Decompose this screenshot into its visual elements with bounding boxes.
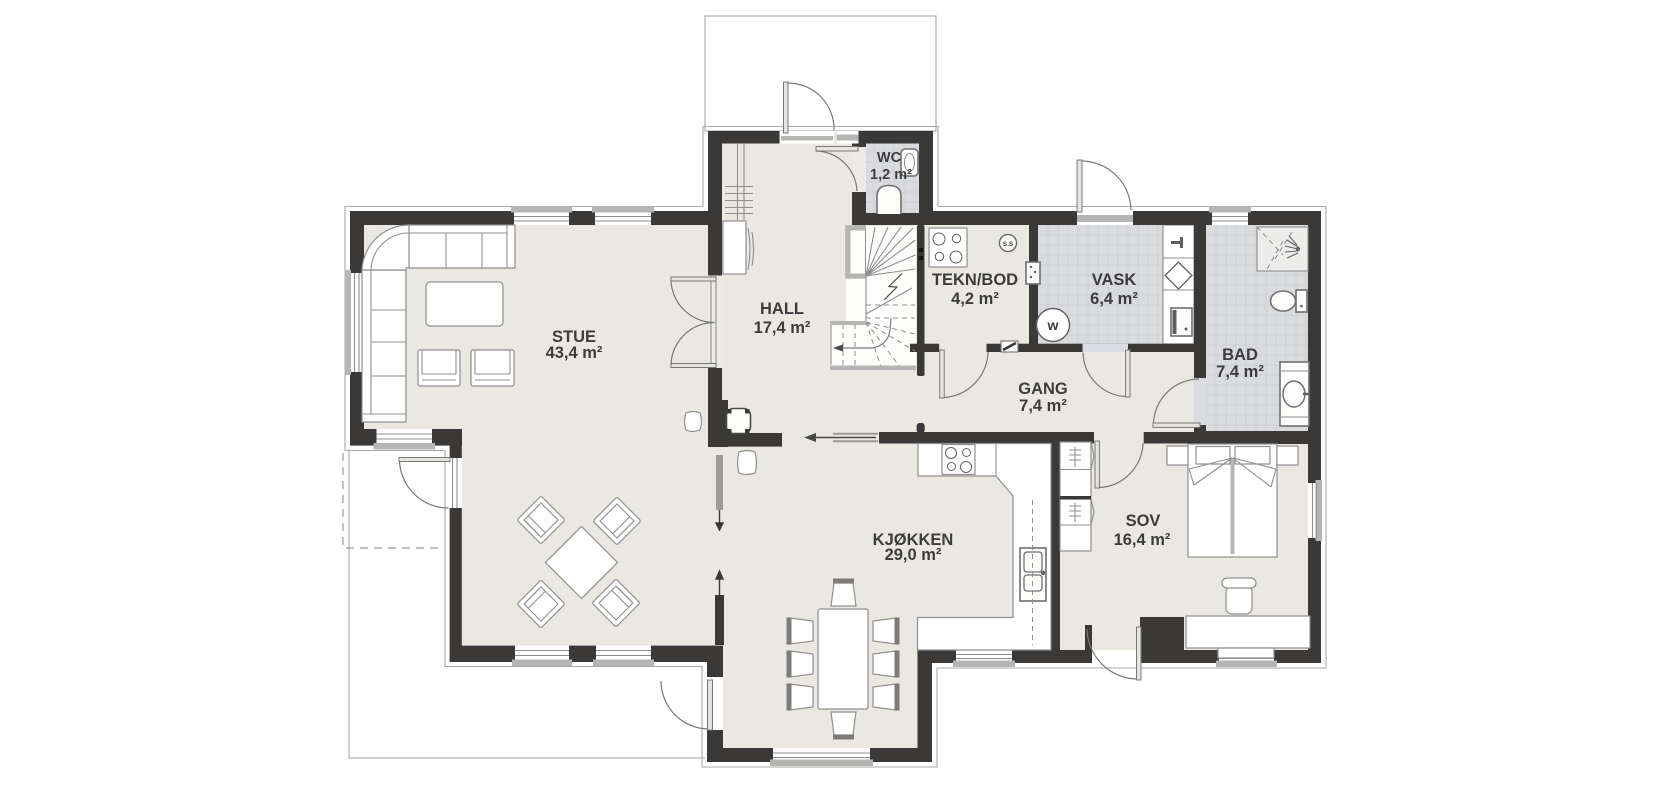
- svg-text:VASK: VASK: [1092, 271, 1137, 289]
- svg-text:6,4 m²: 6,4 m²: [1090, 290, 1138, 308]
- svg-text:1,2 m²: 1,2 m²: [870, 167, 912, 183]
- svg-text:TEKN/BOD: TEKN/BOD: [932, 271, 1018, 289]
- svg-text:7,4 m²: 7,4 m²: [1216, 363, 1264, 381]
- svg-text:HALL: HALL: [760, 300, 804, 318]
- svg-text:43,4 m²: 43,4 m²: [546, 344, 603, 362]
- svg-text:WC: WC: [877, 150, 902, 166]
- svg-text:BAD: BAD: [1222, 346, 1258, 364]
- svg-text:S.S: S.S: [1003, 241, 1014, 248]
- svg-text:GANG: GANG: [1018, 380, 1068, 398]
- svg-text:w: w: [1047, 317, 1059, 333]
- svg-text:16,4 m²: 16,4 m²: [1114, 531, 1171, 549]
- svg-text:17,4 m²: 17,4 m²: [754, 319, 811, 337]
- svg-text:SOV: SOV: [1126, 512, 1161, 530]
- svg-text:4,2 m²: 4,2 m²: [951, 290, 999, 308]
- svg-text:29,0 m²: 29,0 m²: [885, 546, 942, 564]
- svg-text:7,4 m²: 7,4 m²: [1019, 397, 1067, 415]
